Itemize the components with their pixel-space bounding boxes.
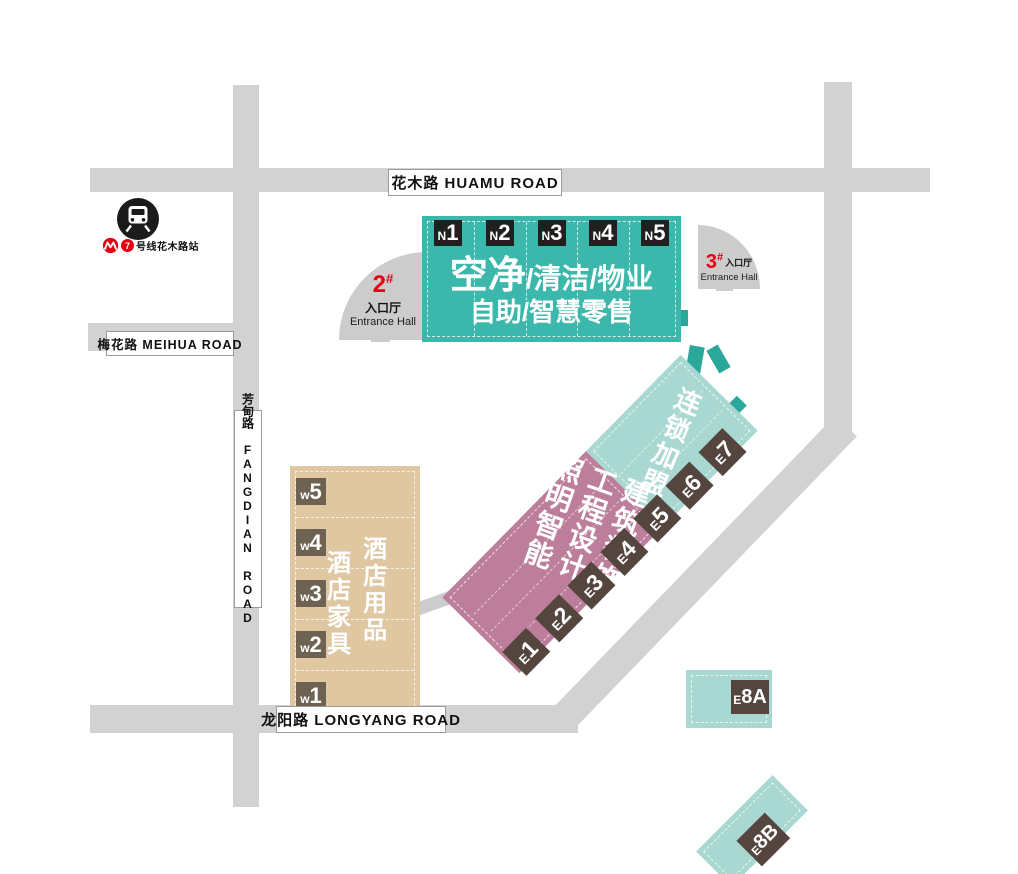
entrance-2-label-zh: 入口厅 [365,299,401,316]
west-zone-label-furniture: 酒店家具 [322,550,350,658]
road-label-fangdian-text: 芳甸路 FANGDIAN ROAD [240,393,257,625]
hall-badge-n2: N2 [486,220,514,246]
road-right-vertical [824,82,852,434]
hall-divider [296,670,414,671]
expo-location-map: 花木路 HUAMU ROAD 梅花路 MEIHUA ROAD 芳甸路 FANGD… [0,0,1018,874]
hall-e8a: E8A [686,670,772,728]
hall-badge-w3: w3 [296,580,326,607]
road-label-longyang-text: 龙阳路 LONGYANG ROAD [261,709,461,730]
west-zone-label-supplies: 酒店用品 [358,536,386,644]
west-halls-strip: w5 w4 w3 w2 w1 酒店用品 酒店家具 [290,466,420,721]
road-label-longyang: 龙阳路 LONGYANG ROAD [276,706,446,733]
metro-station-name: 号线花木路站 [136,238,199,253]
hall-badge-w5: w5 [296,478,326,505]
entrance-hall-2: 2# 入口厅 Entrance Hall [339,252,427,340]
hall-badge-w2: w2 [296,631,326,658]
entrance-2-label-en: Entrance Hall [350,316,416,328]
hall-badge-e8a: E8A [731,680,769,714]
road-label-huamu: 花木路 HUAMU ROAD [388,169,562,196]
road-label-meihua: 梅花路 MEIHUA ROAD [106,331,234,356]
entrance-3-label-zh: 入口厅 [725,256,752,269]
road-label-huamu-text: 花木路 HUAMU ROAD [391,172,558,193]
north-halls-strip: N1 N2 N3 N4 N5 空净/清洁/物业 自助/智慧零售 [422,216,681,342]
hall-badge-n1: N1 [434,220,462,246]
hall-badge-n4: N4 [589,220,617,246]
hall-badge-w4: w4 [296,529,326,556]
entrance-2-number: 2# [373,272,394,297]
metro-station: 7 号线花木路站 [100,196,230,258]
hall-badge-w1: w1 [296,682,326,709]
road-label-fangdian: 芳甸路 FANGDIAN ROAD [234,410,262,608]
entrance-3-number: 3# [706,252,723,272]
north-zone-label-line2: 自助/智慧零售 [422,292,681,329]
hall-badge-n5: N5 [641,220,669,246]
hall-e8b: E8B [696,775,808,874]
north-zone-label-line1: 空净/清洁/物业 [422,244,681,299]
connector-e8a-e8b [706,344,730,373]
hall-divider [296,568,414,569]
road-label-meihua-text: 梅花路 MEIHUA ROAD [97,334,242,353]
hall-badge-n3: N3 [538,220,566,246]
east-halls-strip: 建筑装饰 工程设计 照明智能 连锁加盟 E1 E2 E3 E4 E5 E6 E7 [442,355,757,673]
entrance-hall-3: 3# 入口厅 Entrance Hall [698,225,760,289]
hall-divider [296,517,414,518]
hall-badge-e8b: E8B [736,813,790,867]
entrance-3-label-en: Entrance Hall [700,272,757,283]
hall-divider [296,619,414,620]
metro-line-number-badge: 7 [121,239,134,252]
shanghai-metro-logo-icon [102,237,119,254]
